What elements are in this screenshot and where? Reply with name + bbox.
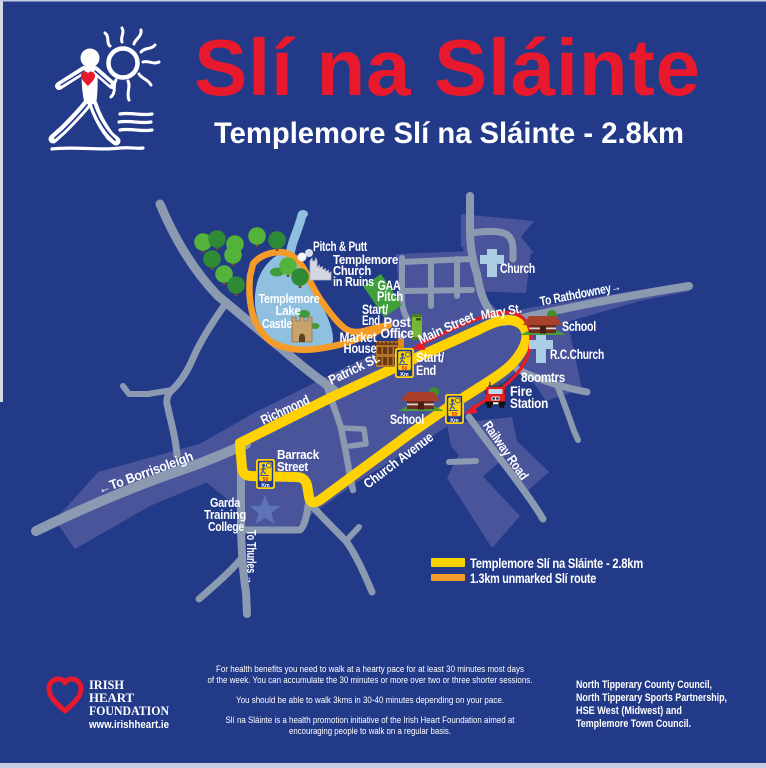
svg-text:Templemore Slí na Sláinte - 2.: Templemore Slí na Sláinte - 2.8km bbox=[214, 117, 684, 150]
svg-text:50: 50 bbox=[402, 366, 408, 372]
svg-text:North Tipperary Sports Partner: North Tipperary Sports Partnership, bbox=[576, 692, 727, 704]
svg-text:Templemore Slí na Sláinte - 2.: Templemore Slí na Sláinte - 2.8km bbox=[470, 556, 643, 571]
svg-text:Street: Street bbox=[277, 459, 309, 474]
svg-text:1.3km unmarked Slí route: 1.3km unmarked Slí route bbox=[470, 571, 597, 586]
svg-text:North Tipperary County Council: North Tipperary County Council, bbox=[576, 679, 712, 691]
svg-text:Station: Station bbox=[510, 395, 548, 411]
svg-text:College: College bbox=[208, 519, 244, 534]
svg-text:Km: Km bbox=[261, 483, 270, 489]
svg-text:For health benefits you need t: For health benefits you need to walk at … bbox=[216, 664, 524, 674]
svg-text:You should be able to walk 3km: You should be able to walk 3kms in 30-40… bbox=[236, 695, 504, 705]
svg-text:R.C.Church: R.C.Church bbox=[550, 346, 604, 362]
svg-text:Office: Office bbox=[381, 325, 414, 341]
svg-text:of the week. You can accumulat: of the week. You can accumulate the 30 m… bbox=[208, 675, 533, 685]
svg-text:To Thurles →: To Thurles → bbox=[244, 530, 259, 584]
svg-text:School: School bbox=[390, 411, 424, 427]
svg-text:Slí na Sláinte: Slí na Sláinte bbox=[194, 23, 700, 112]
svg-text:End: End bbox=[362, 313, 380, 328]
svg-text:Km: Km bbox=[450, 418, 459, 424]
svg-text:Castle: Castle bbox=[262, 316, 292, 331]
svg-text:50: 50 bbox=[452, 412, 458, 418]
svg-text:End: End bbox=[416, 362, 436, 378]
svg-text:Slí na Sláinte is a health pro: Slí na Sláinte is a health promotion ini… bbox=[226, 715, 515, 725]
svg-text:HEART: HEART bbox=[89, 691, 135, 705]
svg-text:Templemore Town Council.: Templemore Town Council. bbox=[576, 718, 691, 730]
svg-text:50: 50 bbox=[263, 477, 269, 483]
svg-text:www.irishheart.ie: www.irishheart.ie bbox=[88, 719, 169, 731]
svg-text:Church: Church bbox=[500, 260, 535, 276]
svg-text:FOUNDATION: FOUNDATION bbox=[89, 704, 169, 718]
svg-text:IRISH: IRISH bbox=[89, 678, 124, 692]
svg-text:encouraging people to walk on: encouraging people to walk on a regular … bbox=[289, 726, 451, 736]
svg-text:School: School bbox=[562, 318, 596, 334]
svg-text:in Ruins: in Ruins bbox=[333, 274, 374, 289]
svg-text:Km: Km bbox=[400, 372, 409, 378]
svg-text:HSE West (Midwest) and: HSE West (Midwest) and bbox=[576, 705, 682, 717]
